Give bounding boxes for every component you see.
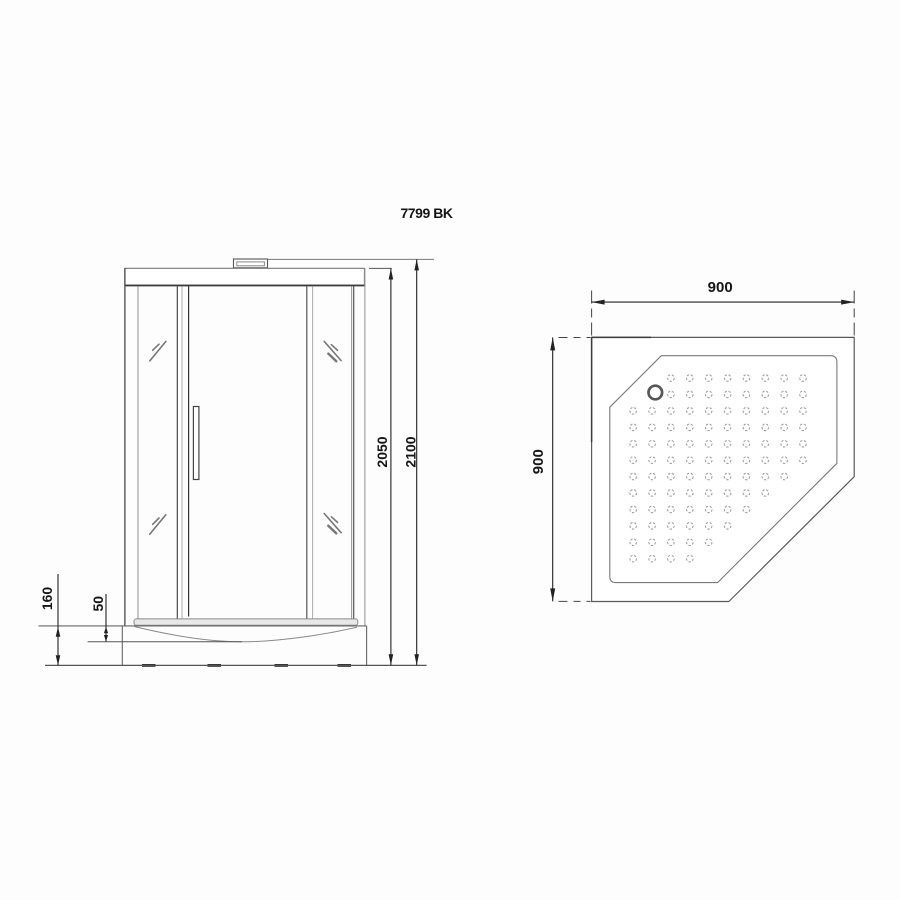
svg-text:160: 160	[39, 587, 55, 611]
svg-text:2050: 2050	[374, 436, 390, 467]
svg-text:900: 900	[530, 449, 547, 474]
svg-text:50: 50	[90, 596, 106, 612]
svg-text:7799 BK: 7799 BK	[400, 205, 452, 221]
svg-text:2100: 2100	[402, 436, 418, 467]
svg-text:900: 900	[708, 279, 733, 296]
